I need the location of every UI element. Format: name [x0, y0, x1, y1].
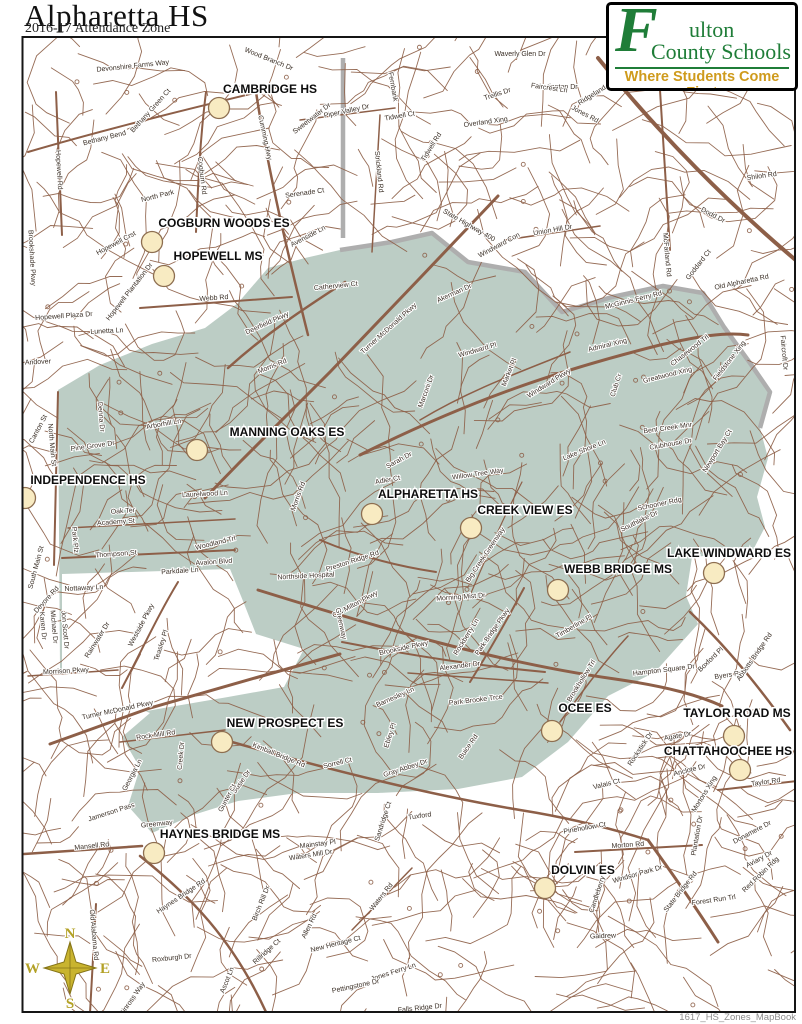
- road-label: Forest Run Trl: [691, 894, 736, 907]
- road-label: Wood Branch Dr: [243, 47, 294, 73]
- school-marker: [548, 580, 569, 601]
- school-marker: [144, 843, 165, 864]
- road-label: Roxburgh Dr: [152, 953, 193, 964]
- map-book-caption: 1617_HS_Zones_MapBook: [679, 1012, 796, 1023]
- road-label: Devore Rd: [33, 585, 61, 615]
- road-label: Allen Rd: [301, 913, 319, 940]
- road-label: Tidwell Rd: [420, 132, 443, 163]
- road-label: Serenade Ct: [285, 187, 325, 199]
- road-label: Union Hill Dr: [533, 224, 574, 238]
- road-label: Canton St: [28, 414, 49, 445]
- school-label: HOPEWELL MS: [173, 249, 262, 263]
- compass-e: E: [100, 961, 110, 977]
- school-marker: [15, 488, 36, 509]
- road-label: Karen Dr: [38, 612, 47, 641]
- road-label: Tuxford: [408, 811, 432, 821]
- school-label: WEBB BRIDGE MS: [564, 562, 672, 576]
- road-label: Cumming Hwy: [256, 115, 272, 161]
- road-label: Bethany Bend: [82, 130, 126, 147]
- school-marker: [730, 760, 751, 781]
- road-label: Valais Ct: [592, 778, 620, 791]
- school-marker: [209, 98, 230, 119]
- road-label: Overland Xing: [463, 116, 508, 129]
- road-label: North Park: [141, 189, 176, 204]
- road-label: Devonshire Farms Way: [96, 59, 170, 74]
- school-label: INDEPENDENCE HS: [30, 473, 145, 487]
- school-marker: [212, 732, 233, 753]
- school-label: MANNING OAKS ES: [230, 425, 345, 439]
- map-layers: Devonshire Farms WayWood Branch DrHopewe…: [0, 0, 802, 1024]
- school-label: CAMBRIDGE HS: [223, 82, 317, 96]
- road-label: State Highway 400: [442, 208, 496, 243]
- logo-county-schools-text: County Schools: [651, 39, 791, 65]
- school-label: DOLVIN ES: [551, 863, 615, 877]
- road-label: Gaidrew: [590, 933, 617, 941]
- fulton-county-schools-logo: F ulton County Schools Where Students Co…: [606, 2, 798, 91]
- compass-s: S: [66, 996, 74, 1012]
- logo-tagline: Where Students Come First: [609, 69, 795, 91]
- school-marker: [142, 232, 163, 253]
- school-marker: [187, 440, 208, 461]
- compass-n: N: [65, 926, 76, 942]
- school-marker: [704, 563, 725, 584]
- attendance-zone-page: { "header": {"title": "Alpharetta HS", "…: [0, 0, 802, 1024]
- road-label: Michael Dr: [49, 610, 59, 645]
- school-label: COGBURN WOODS ES: [158, 216, 289, 230]
- road-label: Dodd Dr: [700, 206, 727, 225]
- road-label: Jamerson Pass: [88, 802, 137, 824]
- school-label: HAYNES BRIDGE MS: [160, 827, 280, 841]
- school-label: OCEE ES: [558, 701, 611, 715]
- road-label: Hopewell Plantation Dr: [105, 261, 155, 322]
- road-label: Rockstick Dr: [627, 730, 655, 767]
- road-label: Faircroft Dr: [778, 335, 788, 371]
- road-label: Old Alpharetta Rd: [714, 273, 770, 291]
- road-label: Jones Rd: [570, 105, 599, 125]
- road-label: Mortons Xing: [691, 775, 719, 814]
- school-marker: [535, 878, 556, 899]
- road-label: Pettingstone Dr: [331, 978, 380, 995]
- school-label: CHATTAHOOCHEE HS: [664, 744, 792, 758]
- school-marker: [461, 518, 482, 539]
- attendance-zone-map: Devonshire Farms WayWood Branch DrHopewe…: [0, 0, 802, 1024]
- road-label: Shiloh Rd: [746, 171, 777, 182]
- road-label: South Main St: [27, 545, 45, 589]
- school-label: TAYLOR ROAD MS: [683, 706, 790, 720]
- road-label: Taylor Rd: [751, 777, 781, 788]
- school-label: ALPHARETTA HS: [378, 487, 478, 501]
- road-label: Andover: [25, 358, 52, 366]
- compass-w: W: [25, 961, 40, 977]
- road-label: Goddard Ct: [685, 249, 713, 282]
- road-label: Old Alabama Rd: [88, 909, 99, 960]
- road-label: Bethany Green Ct: [130, 88, 173, 134]
- road-label: Hopewell Crst: [95, 230, 137, 257]
- school-marker: [542, 721, 563, 742]
- school-label: NEW PROSPECT ES: [227, 716, 344, 730]
- school-label: CREEK VIEW ES: [477, 503, 572, 517]
- road-label: Tidwell Ct: [384, 110, 415, 122]
- road-label: Waters Mill Dr: [289, 849, 334, 863]
- road-label: Lunetta Ln: [90, 327, 124, 336]
- road-label: Brookshade Pkwy: [27, 230, 37, 287]
- road-label: Plantation Dr: [691, 815, 705, 857]
- road-label: New Heritage Ct: [310, 935, 362, 954]
- school-label: LAKE WINDWARD ES: [667, 546, 791, 560]
- school-marker: [362, 504, 383, 525]
- school-marker: [154, 266, 175, 287]
- road-label: Fernbank: [386, 72, 398, 103]
- road-label: North Main St: [46, 423, 57, 466]
- road-label: Strickland Rd: [373, 151, 384, 193]
- page-subtitle: 2016-17 Attendance Zone: [25, 21, 170, 37]
- road-label: Ascot Ln: [219, 966, 236, 994]
- road-label: Hopewell Rd: [54, 150, 63, 190]
- road-label: Waters Rd: [369, 882, 395, 912]
- road-label: Hopewell Plaza Dr: [35, 311, 94, 322]
- road-label: Waverly Glen Dr: [494, 51, 546, 58]
